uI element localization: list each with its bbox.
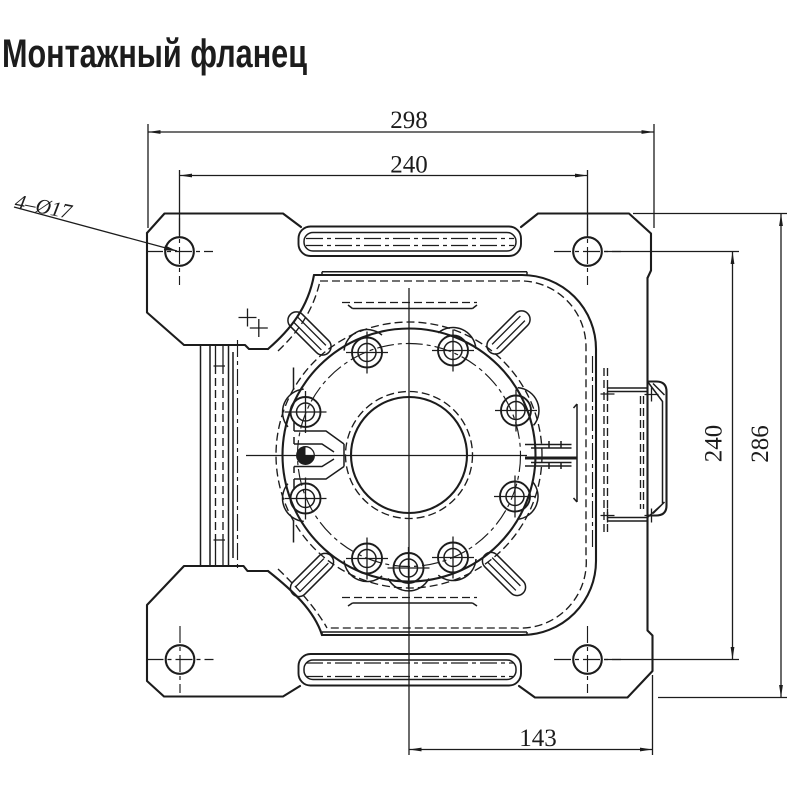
- svg-text:298: 298: [390, 107, 428, 134]
- svg-text:240: 240: [390, 152, 428, 179]
- svg-text:286: 286: [747, 425, 774, 463]
- svg-text:Монтажный фланец: Монтажный фланец: [2, 32, 307, 76]
- svg-text:143: 143: [519, 725, 557, 752]
- svg-text:240: 240: [701, 425, 728, 463]
